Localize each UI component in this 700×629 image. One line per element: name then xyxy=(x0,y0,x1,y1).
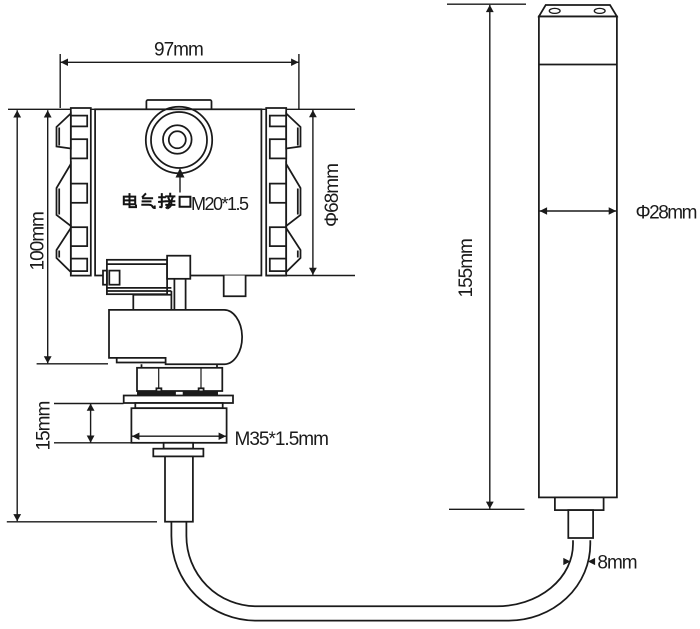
svg-text:Φ28mm: Φ28mm xyxy=(636,203,697,224)
svg-text:M20*1.5: M20*1.5 xyxy=(191,194,249,214)
svg-text:97mm: 97mm xyxy=(154,40,203,61)
svg-text:8mm: 8mm xyxy=(597,553,636,574)
svg-text:100mm: 100mm xyxy=(28,212,49,271)
svg-text:155mm: 155mm xyxy=(456,239,477,298)
svg-text:M35*1.5mm: M35*1.5mm xyxy=(235,429,329,450)
svg-text:15mm: 15mm xyxy=(34,402,55,451)
svg-text:Φ68mm: Φ68mm xyxy=(322,164,343,227)
